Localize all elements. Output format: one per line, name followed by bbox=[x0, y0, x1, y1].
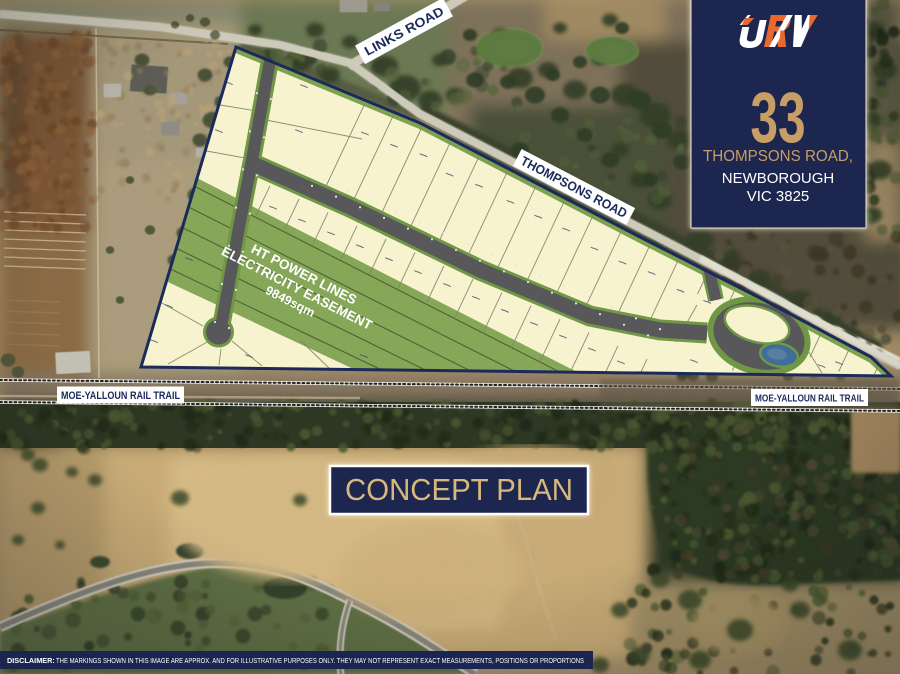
svg-text:DISCLAIMER:: DISCLAIMER: bbox=[7, 656, 55, 665]
svg-text:VIC 3825: VIC 3825 bbox=[747, 188, 810, 205]
svg-text:THOMPSONS ROAD,: THOMPSONS ROAD, bbox=[703, 148, 853, 165]
svg-text:MOE-YALLOUN RAIL TRAIL: MOE-YALLOUN RAIL TRAIL bbox=[61, 390, 180, 402]
svg-text:THE MARKINGS SHOWN IN THIS IMA: THE MARKINGS SHOWN IN THIS IMAGE ARE APP… bbox=[56, 656, 584, 665]
svg-text:NEWBOROUGH: NEWBOROUGH bbox=[722, 170, 835, 187]
svg-text:33: 33 bbox=[750, 78, 805, 157]
svg-text:CONCEPT PLAN: CONCEPT PLAN bbox=[345, 472, 573, 507]
svg-text:MOE-YALLOUN RAIL TRAIL: MOE-YALLOUN RAIL TRAIL bbox=[755, 393, 864, 405]
